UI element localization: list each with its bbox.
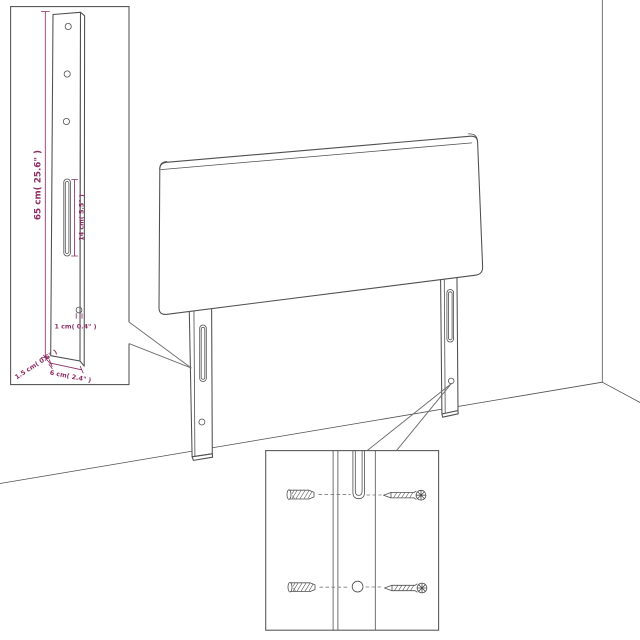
mounting-detail-inset [266, 451, 439, 631]
callout-line [367, 384, 451, 451]
label-post-height: 65 cm( 25.6" ) [34, 150, 44, 220]
leg-detail-inset: 65 cm( 25.6" ) 14 cm( 5.5" ) 1 cm( 0.4" … [11, 7, 129, 385]
headboard-diagram: 65 cm( 25.6" ) 14 cm( 5.5" ) 1 cm( 0.4" … [0, 0, 640, 640]
headboard [159, 134, 483, 461]
left-leg [189, 304, 212, 460]
headboard-panel [159, 136, 483, 314]
post-side-face [80, 12, 85, 366]
inset-box-border [266, 451, 439, 631]
floor-line-right [602, 382, 640, 402]
callout-line [129, 322, 191, 368]
diagram-canvas: 65 cm( 25.6" ) 14 cm( 5.5" ) 1 cm( 0.4" … [0, 0, 640, 640]
callout-lines-left-inset [129, 322, 191, 368]
callout-lines-bottom-inset [367, 384, 451, 451]
right-leg [441, 269, 459, 418]
label-hole-diameter: 1 cm( 0.4" ) [54, 323, 96, 331]
label-slot-length: 14 cm( 5.5" ) [78, 194, 86, 241]
right-leg-body [441, 269, 459, 415]
label-post-width: 6 cm( 2.4" ) [49, 369, 92, 385]
callout-line [129, 344, 191, 369]
